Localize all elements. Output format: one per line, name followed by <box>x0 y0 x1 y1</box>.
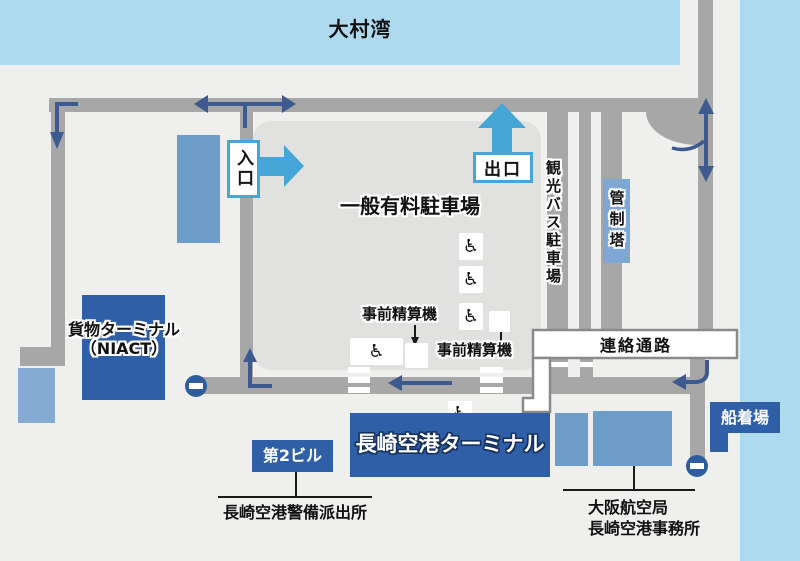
road-corner-curve <box>646 112 698 145</box>
building-southwest <box>18 368 55 423</box>
cargo-terminal-label-line2: （NIACT） <box>44 339 204 358</box>
wheelchair-icon: ♿ <box>463 271 479 289</box>
building-northwest <box>177 135 220 243</box>
bay-label: 大村湾 <box>300 17 420 41</box>
aviation-office-label: 大阪航空局 長崎空港事務所 <box>588 497 700 539</box>
wheelchair-space-3: ♿ <box>459 303 483 330</box>
wheelchair-icon: ♿ <box>368 343 384 361</box>
office-building-2 <box>593 411 672 466</box>
police-label: 長崎空港警備派出所 <box>212 503 378 522</box>
terminal-building: 長崎空港ターミナル <box>350 413 550 477</box>
road-right-lower <box>690 358 705 460</box>
airport-map: 貨物ターミナル （NIACT） 大村湾 一般有料駐車場 入口 出口 観光バス駐車… <box>0 0 800 561</box>
bus-lane-2 <box>579 112 591 332</box>
dock-label: 船着場 <box>721 408 769 427</box>
aviation-office-line2: 長崎空港事務所 <box>588 518 700 539</box>
wheelchair-space-wide: ♿ <box>350 338 403 365</box>
terminal-label: 長崎空港ターミナル <box>356 432 545 457</box>
wheelchair-icon: ♿ <box>463 308 479 326</box>
payment-machine-box-west <box>405 343 428 368</box>
no-entry-icon-west <box>185 375 207 397</box>
exit-gate-label: 出口 <box>473 152 533 183</box>
no-entry-icon-dock <box>686 455 708 477</box>
office-building-1 <box>555 413 588 466</box>
bus-parking-label: 観光バス駐車場 <box>544 160 562 310</box>
walkway-label: 連絡通路 <box>600 336 690 355</box>
dock-label-box: 船着場 <box>710 402 780 433</box>
cargo-terminal-label-line1: 貨物ターミナル <box>44 320 204 339</box>
crosswalk-east <box>480 367 503 393</box>
wheelchair-icon: ♿ <box>463 238 479 256</box>
wheelchair-space-1: ♿ <box>459 233 483 260</box>
aviation-office-line1: 大阪航空局 <box>588 497 700 518</box>
building2-label: 第2ビル <box>263 446 322 465</box>
control-tower-label: 管制塔 <box>603 179 630 263</box>
payment-machine-label-1: 事前精算機 <box>352 305 447 323</box>
entrance-gate-label: 入口 <box>227 140 260 198</box>
crosswalk-west <box>348 367 370 393</box>
wheelchair-space-2: ♿ <box>459 266 483 293</box>
bus-lane-stub-2 <box>580 358 593 378</box>
bus-lane-stub-1 <box>551 358 568 378</box>
parking-title: 一般有料駐車場 <box>300 194 520 218</box>
payment-machine-label-2: 事前精算機 <box>437 341 532 359</box>
road-lower <box>196 377 705 394</box>
stub-dash-1 <box>551 362 568 367</box>
payment-machine-box-east <box>489 311 510 332</box>
dock-extension <box>710 433 728 452</box>
building2-box: 第2ビル <box>252 440 333 472</box>
road-top <box>49 98 698 112</box>
cargo-terminal-label: 貨物ターミナル （NIACT） <box>44 320 204 358</box>
stub-dash-2 <box>580 362 593 367</box>
